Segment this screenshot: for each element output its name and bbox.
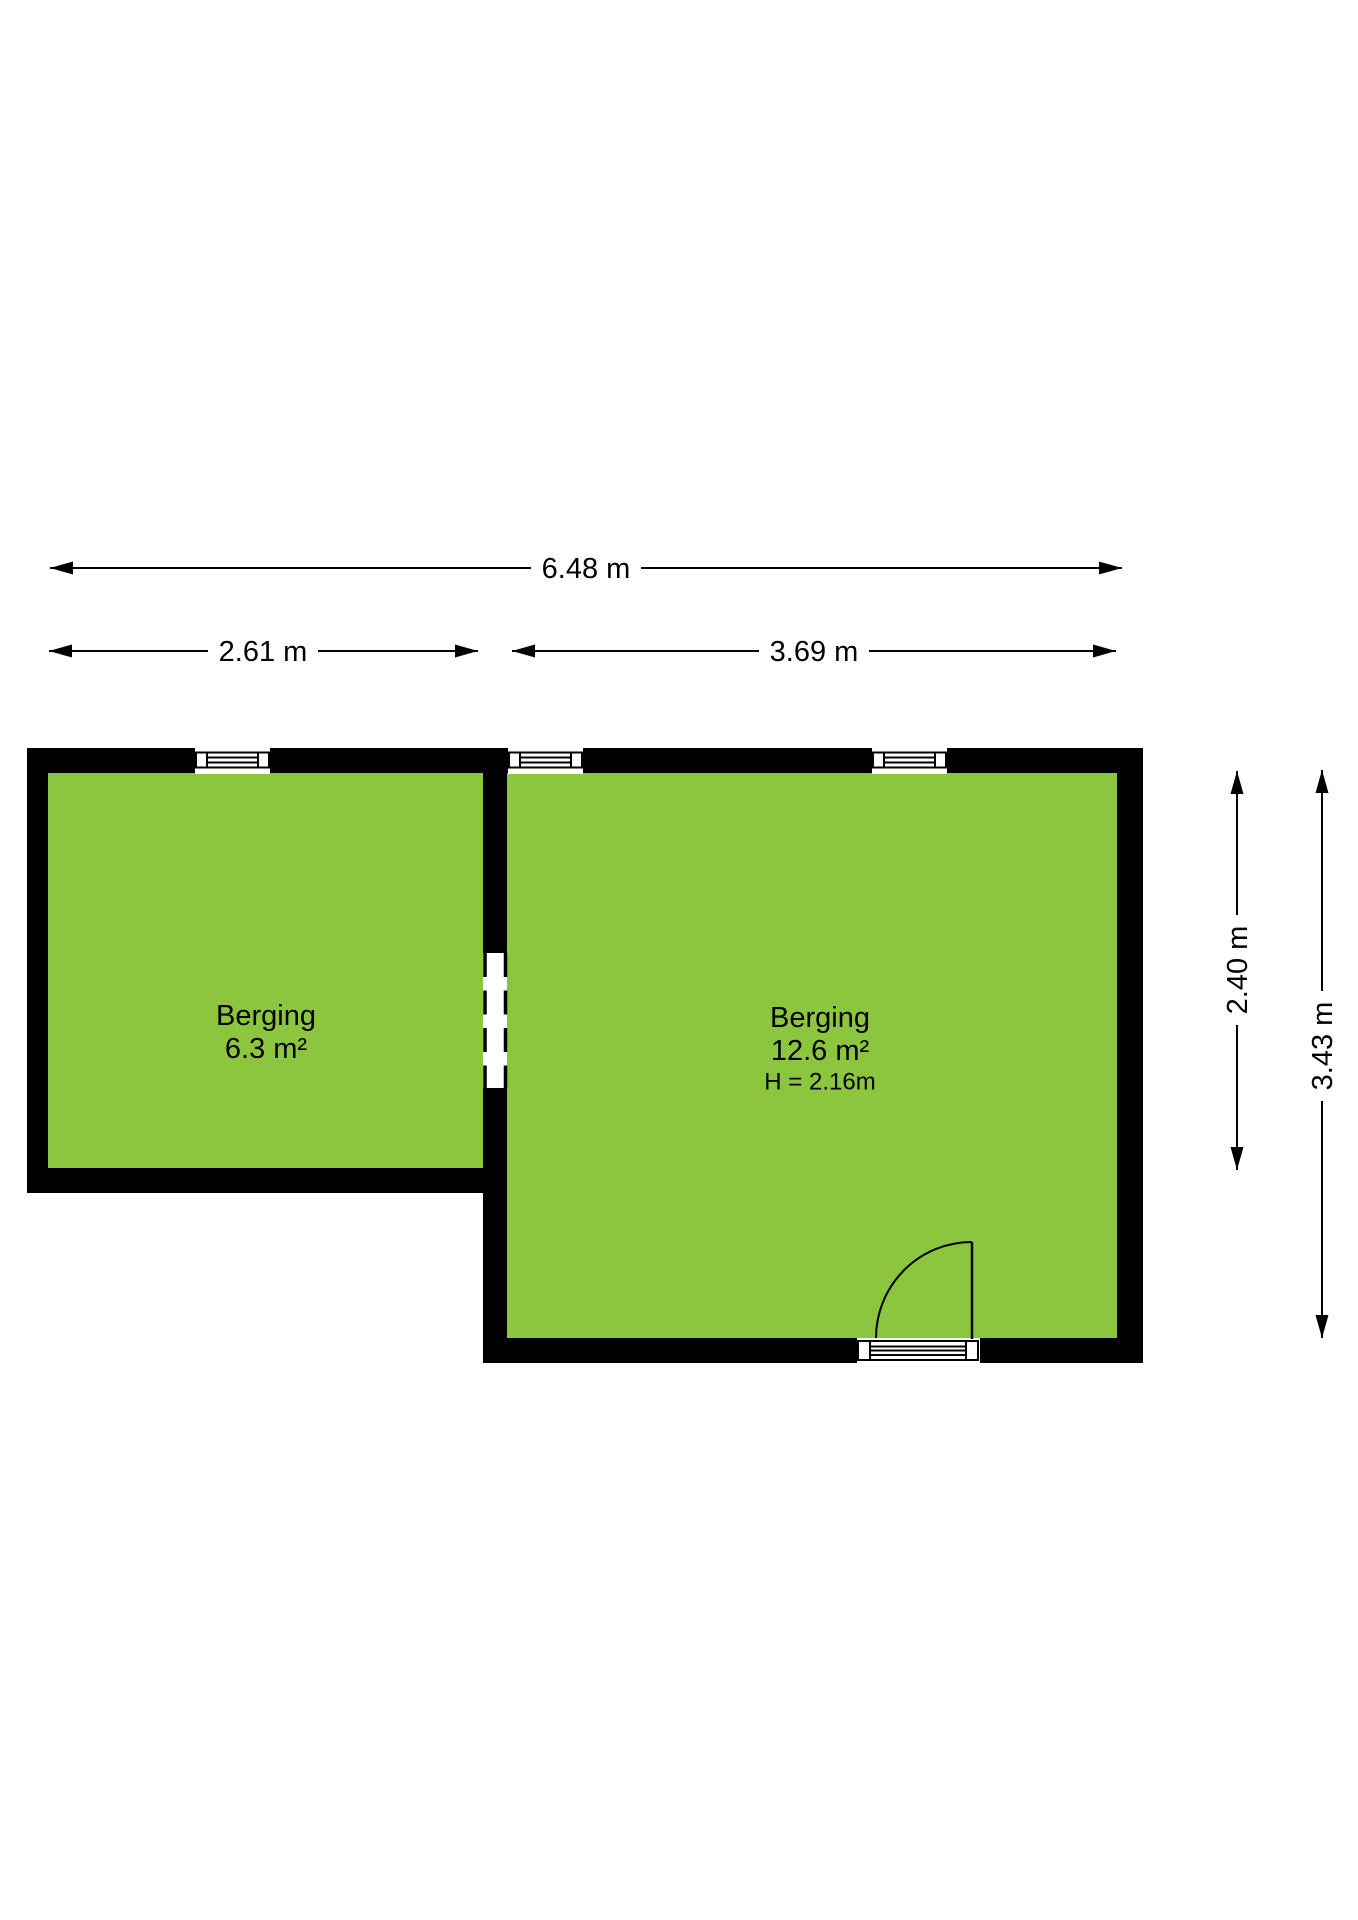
dimension-label-room1-width: 2.61 m xyxy=(219,636,308,668)
window-icon xyxy=(872,747,947,774)
room2-label: Berging 12.6 m² H = 2.16m xyxy=(764,1002,875,1095)
dimension-label-room2-width: 3.69 m xyxy=(770,636,859,668)
dimension-label-room1-height: 2.40 m xyxy=(1222,926,1254,1015)
room1-name: Berging xyxy=(216,1000,316,1032)
wall-bottom-room2 xyxy=(483,1338,1143,1363)
room1-area: 6.3 m² xyxy=(225,1033,308,1065)
wall-left xyxy=(27,748,48,1193)
dimension-room1-height: 2.40 m xyxy=(1220,771,1254,1170)
dimension-room2-height: 3.43 m xyxy=(1305,770,1339,1338)
wall-opening-icon xyxy=(483,953,507,1088)
dimension-label-room2-height: 3.43 m xyxy=(1307,1002,1339,1091)
dimension-total-width: 6.48 m xyxy=(50,551,1122,585)
floorplan-canvas: 6.48 m 2.61 m 3.69 m 2.40 m 3.43 m xyxy=(0,0,1358,1920)
dimension-room2-width: 3.69 m xyxy=(512,634,1116,668)
wall-top xyxy=(27,748,1143,773)
dimension-label-total-width: 6.48 m xyxy=(542,553,631,585)
room2-area: 12.6 m² xyxy=(771,1035,870,1067)
floorplan-drawing: 6.48 m 2.61 m 3.69 m 2.40 m 3.43 m xyxy=(0,0,1358,1920)
room1-floor xyxy=(48,773,483,1168)
window-icon xyxy=(195,747,270,774)
wall-bottom-room1 xyxy=(27,1168,507,1193)
room1-label: Berging 6.3 m² xyxy=(216,1000,316,1065)
wall-right xyxy=(1117,748,1143,1363)
dimension-room1-width: 2.61 m xyxy=(49,634,478,668)
room2-ceiling-height: H = 2.16m xyxy=(764,1068,875,1095)
window-icon xyxy=(508,747,583,774)
room2-name: Berging xyxy=(770,1002,870,1034)
